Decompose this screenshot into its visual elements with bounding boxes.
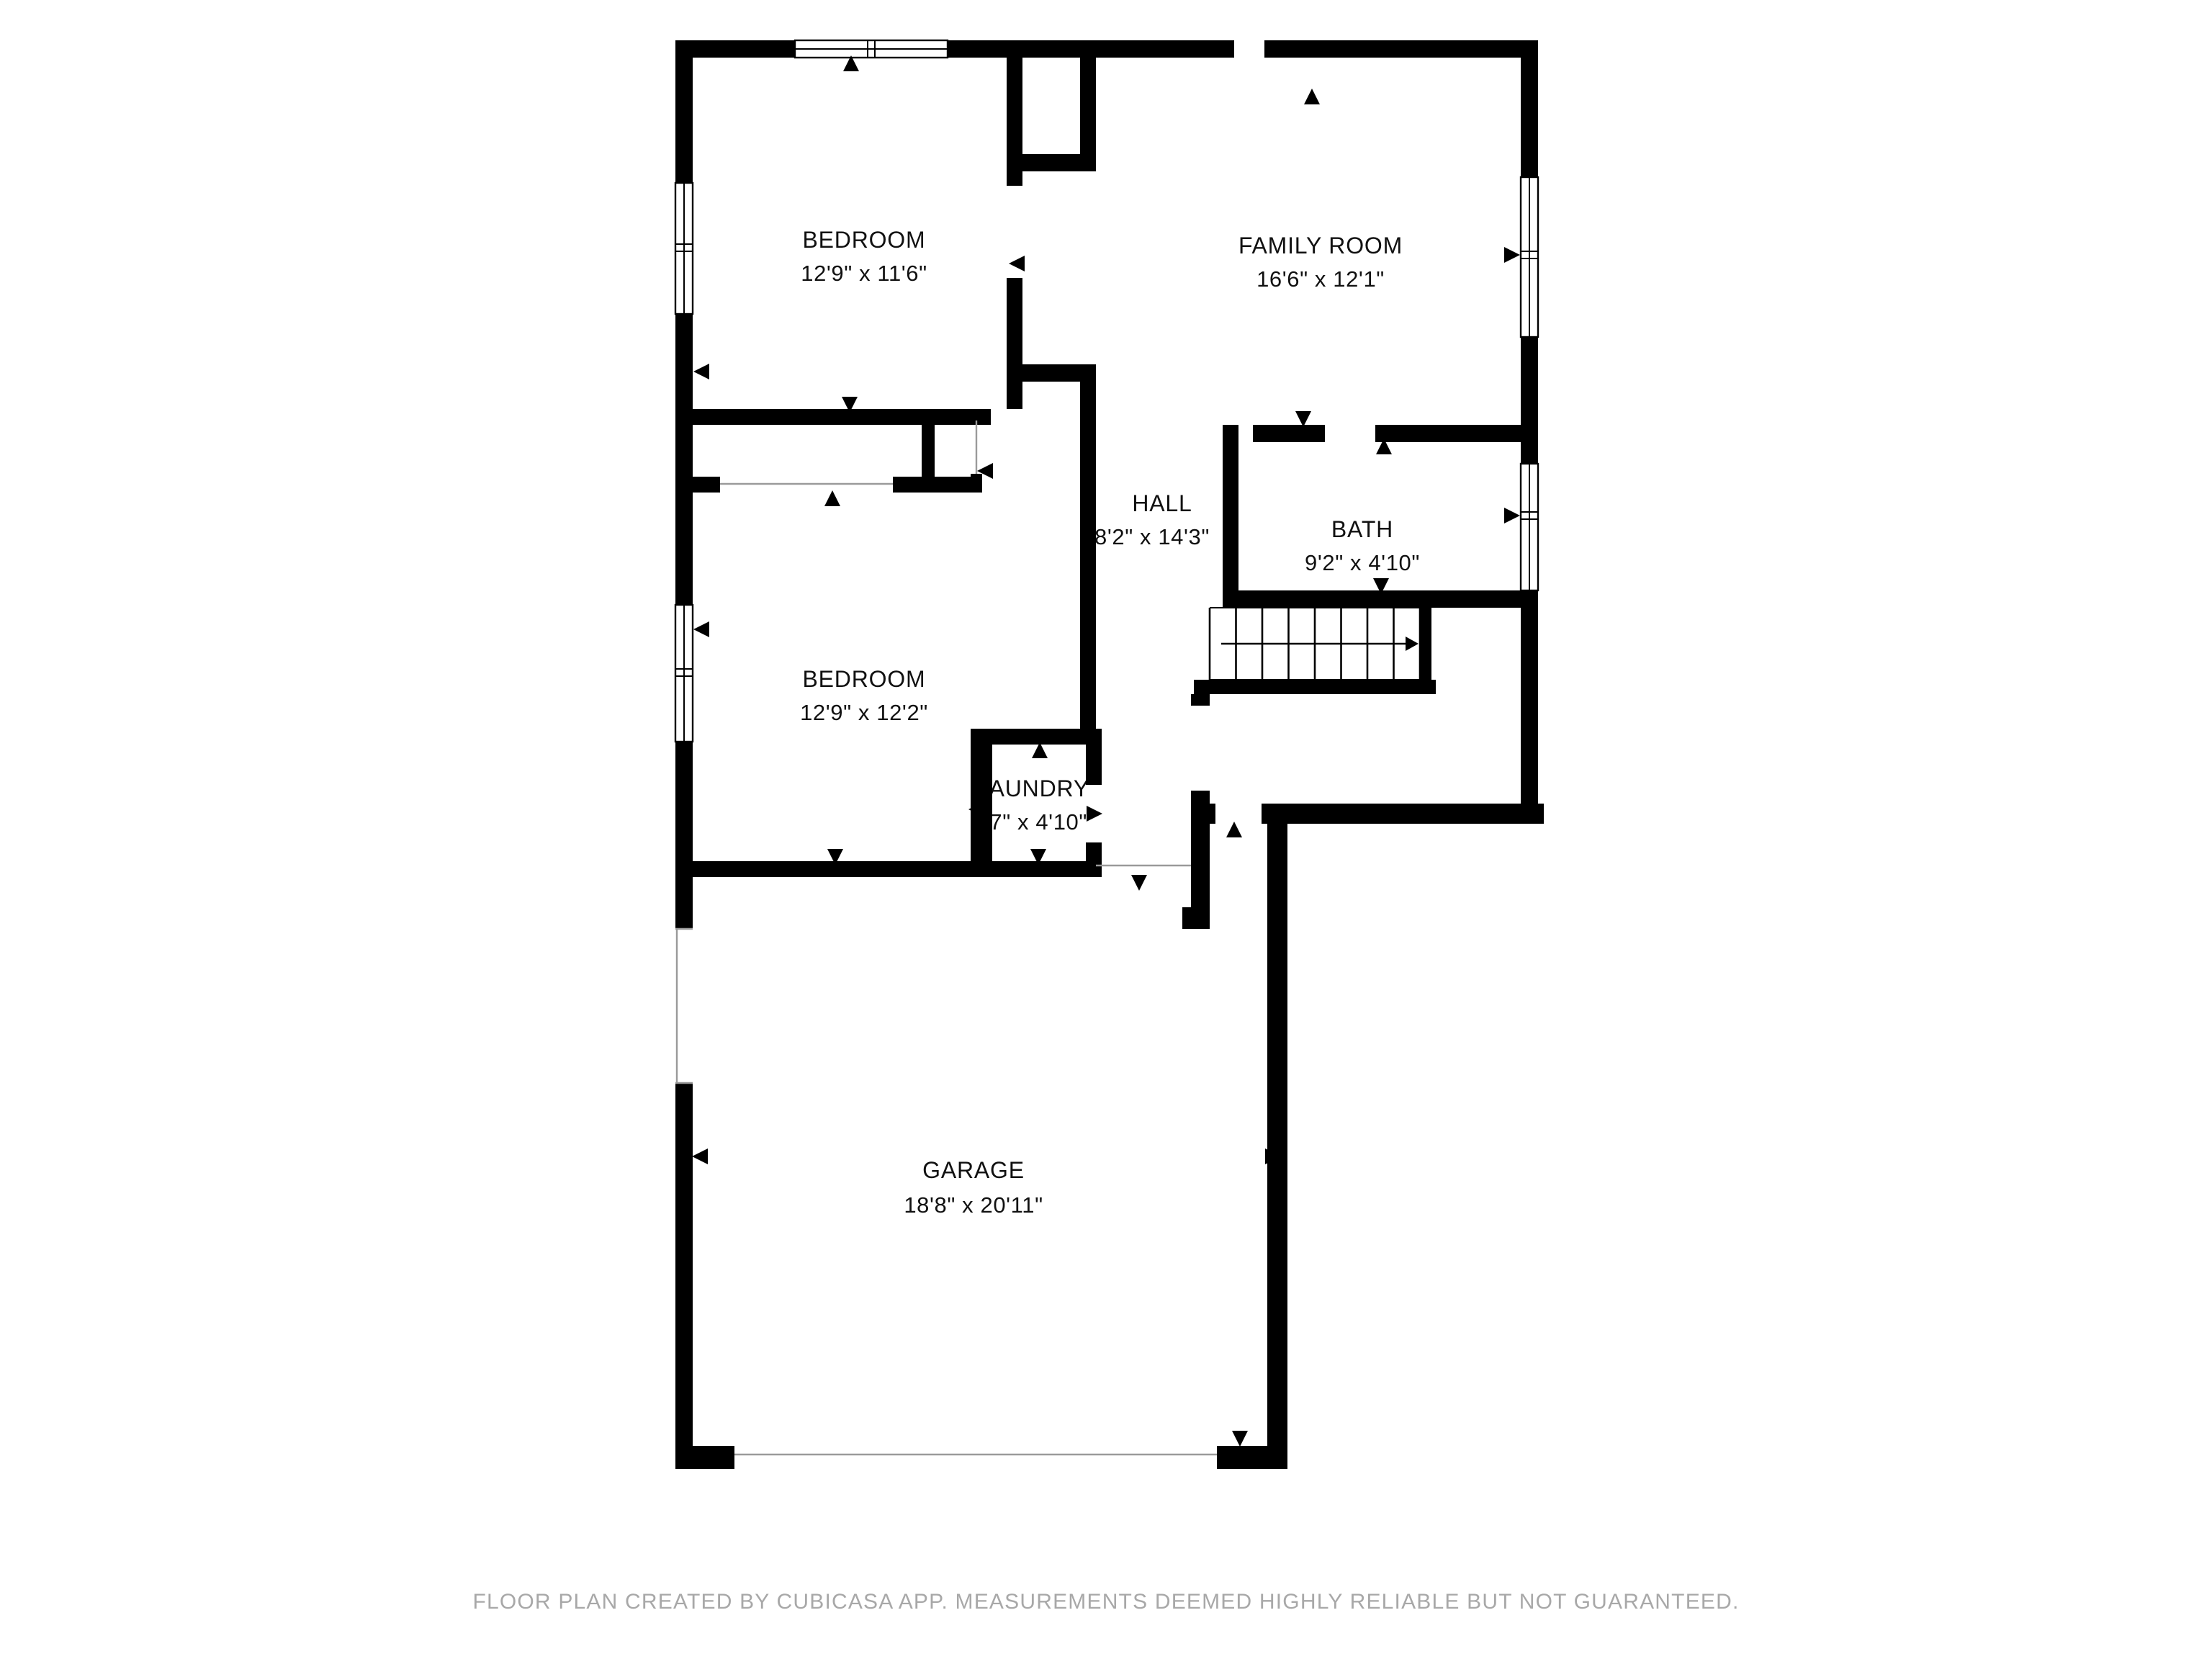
room-label-hall: HALL (1132, 490, 1192, 516)
wall-segment (1223, 425, 1238, 608)
room-dimensions-garage: 18'8" x 20'11" (904, 1192, 1043, 1218)
wall-segment (1217, 1446, 1287, 1469)
room-label-garage: GARAGE (922, 1157, 1025, 1183)
wall-segment (675, 877, 693, 929)
wall-segment (675, 40, 1234, 58)
wall-segment (675, 409, 991, 425)
wall-segment (1375, 425, 1538, 442)
wall-segment (1086, 729, 1102, 785)
wall-segment (922, 409, 935, 493)
wall-segment (675, 477, 720, 493)
wall-segment (1262, 804, 1544, 824)
room-dimensions-bath: 9'2" x 4'10" (1305, 550, 1420, 575)
wall-segment (675, 861, 1096, 877)
wall-segment (1420, 608, 1431, 688)
wall-segment (1267, 824, 1287, 1469)
footer-disclaimer: FLOOR PLAN CREATED BY CUBICASA APP. MEAS… (472, 1590, 1739, 1614)
wall-segment (1080, 382, 1096, 729)
wall-segment (1007, 364, 1096, 382)
room-label-family-room: FAMILY ROOM (1238, 233, 1403, 258)
room-label-bedroom-2: BEDROOM (803, 666, 926, 692)
room-dimensions-family-room: 16'6" x 12'1" (1256, 266, 1385, 292)
room-dimensions-bedroom-2: 12'9" x 12'2" (800, 700, 928, 725)
wall-segment (1223, 590, 1538, 608)
room-label-bath: BATH (1331, 516, 1393, 542)
wall-segment (1080, 40, 1096, 171)
wall-segment (971, 409, 982, 421)
wall-segment (1182, 907, 1210, 929)
wall-segment (675, 1446, 734, 1469)
wall-segment (1007, 278, 1022, 409)
wall-segment (675, 1083, 693, 1469)
room-label-laundry: LAUNDRY (976, 775, 1089, 801)
wall-segment (675, 40, 693, 877)
room-label-bedroom-1: BEDROOM (803, 227, 926, 253)
room-dimensions-hall: 8'2" x 14'3" (1094, 524, 1210, 549)
floor-plan-canvas: BEDROOM12'9" x 11'6"FAMILY ROOM16'6" x 1… (0, 0, 2212, 1659)
wall-segment (1253, 425, 1325, 442)
wall-segment (1201, 804, 1215, 824)
wall-segment (1018, 154, 1096, 171)
wall-segment (893, 477, 982, 493)
wall-segment (1086, 842, 1102, 877)
wall-segment (1191, 694, 1210, 706)
room-dimensions-bedroom-1: 12'9" x 11'6" (801, 261, 927, 286)
wall-segment (1194, 680, 1436, 694)
wall-segment (1264, 40, 1538, 58)
page-background (0, 0, 2212, 1659)
wall-segment (971, 474, 982, 493)
